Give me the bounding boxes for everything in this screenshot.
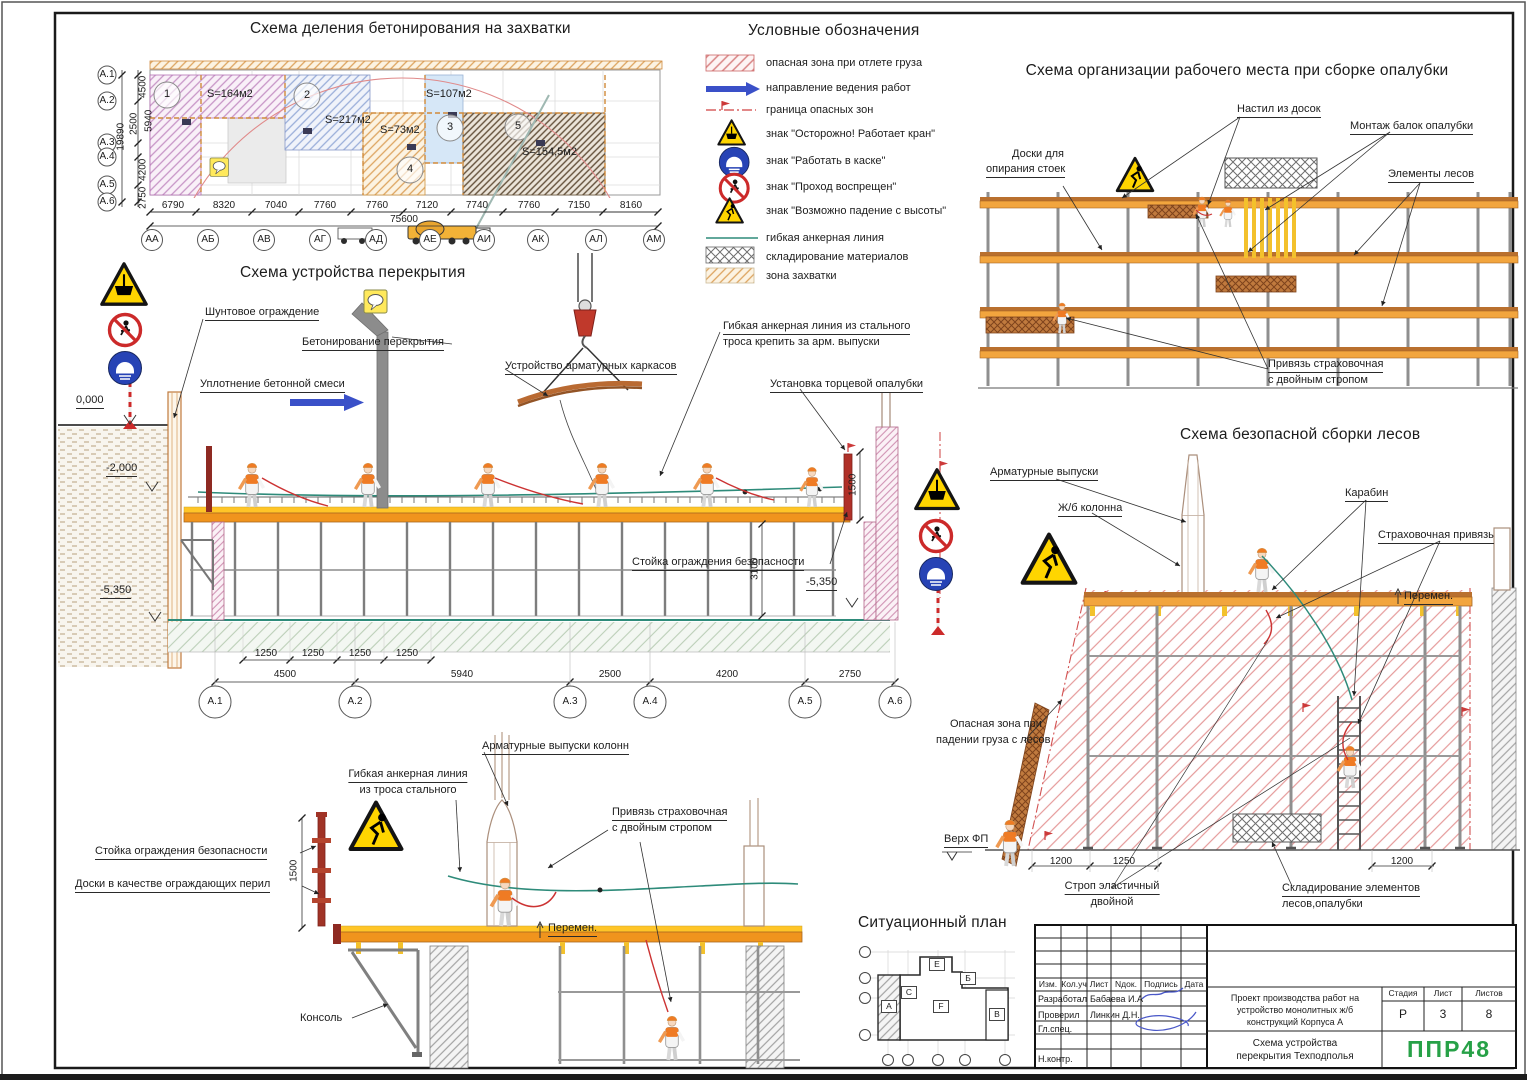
block-a: А xyxy=(881,1000,897,1013)
dim-label: 8320 xyxy=(213,200,235,212)
label-kolonna: Ж/б колонна xyxy=(1058,502,1122,517)
tb-sheet-value: 3 xyxy=(1440,1008,1447,1022)
legend-item: знак "Проход воспрещен" xyxy=(766,181,896,194)
tb-role: Н.контр. xyxy=(1038,1054,1073,1064)
label-strop-1: Строп эластичный xyxy=(1065,880,1160,895)
dim-label: 6790 xyxy=(162,200,184,212)
zone-area: S=154,5м2 xyxy=(522,146,577,159)
label-shuntovoe: Шунтовое ограждение xyxy=(205,306,319,321)
block-v: В xyxy=(989,1008,1005,1021)
work-direction-arrow-icon xyxy=(290,399,344,406)
label-doski-perila: Доски в качестве ограждающих перил xyxy=(75,878,270,893)
label-nastil: Настил из досок xyxy=(1237,103,1321,118)
tb-col-izm: Изм. xyxy=(1039,980,1057,990)
label-privyaz: Страховочная привязь xyxy=(1378,529,1494,544)
axis-label: АА xyxy=(145,234,158,246)
dim-label: 7120 xyxy=(416,200,438,212)
axis-label: А.1 xyxy=(99,69,114,81)
tb-drawing-1: Схема устройства xyxy=(1253,1038,1337,1050)
legend-item: складирование материалов xyxy=(766,251,908,264)
label-anker-1: Гибкая анкерная линия из стального xyxy=(723,320,910,335)
label-elementy: Элементы лесов xyxy=(1388,168,1474,183)
dim-label: 4500 xyxy=(274,669,296,681)
dim-label: 2750 xyxy=(839,669,861,681)
axis-label: А.6 xyxy=(887,696,902,708)
zone-area: S=164м2 xyxy=(207,88,253,101)
tb-sheet-label: Лист xyxy=(1434,989,1452,999)
dim-label: 1500 xyxy=(847,455,859,515)
tb-stage-value: Р xyxy=(1399,1008,1407,1022)
dim-label: 7760 xyxy=(366,200,388,212)
block-b: Б xyxy=(960,972,976,985)
axis-label: А.4 xyxy=(642,696,657,708)
tb-drawing-2: перекрытия Техподполья xyxy=(1236,1051,1353,1063)
tb-name: Бабаева И.А xyxy=(1090,994,1143,1004)
label-torec: Установка торцевой опалубки xyxy=(770,378,923,393)
dim-label: 1250 xyxy=(1113,856,1135,868)
label-privyaz-2: с двойным стропом xyxy=(612,822,712,835)
label-peremen: Перемен. xyxy=(548,922,597,937)
axis-label: АГ xyxy=(314,234,326,246)
label-uplotnenie: Уплотнение бетонной смеси xyxy=(200,378,345,393)
label-stoika: Стойка ограждения безопасности xyxy=(632,556,804,571)
axis-label: А.6 xyxy=(99,196,114,208)
elevation-label: -5,350 xyxy=(100,584,131,599)
label-doski-2: опирания стоек xyxy=(986,163,1065,178)
storage-hatch-icon xyxy=(706,247,754,263)
hazard-zone-hatch-icon xyxy=(706,55,754,71)
tb-col-ndok: Nдок. xyxy=(1115,980,1137,990)
label-anker-2: из троса стального xyxy=(360,784,457,797)
zone-area: S=73м2 xyxy=(380,124,420,137)
dim-label: 8160 xyxy=(620,200,642,212)
zone-number: 1 xyxy=(164,88,170,101)
legend-item: зона захватки xyxy=(766,270,837,283)
axis-label: АЛ xyxy=(589,234,602,246)
axis-label: АБ xyxy=(201,234,214,246)
dim-label: 1250 xyxy=(396,648,418,660)
tb-col-podpis: Подпись xyxy=(1144,980,1178,990)
tb-role: Разработал xyxy=(1038,994,1087,1004)
label-stoika: Стойка ограждения безопасности xyxy=(95,845,267,860)
dim-total: 75600 xyxy=(390,214,418,226)
helmet-sign-icon xyxy=(109,352,142,385)
legend-item: гибкая анкерная линия xyxy=(766,232,884,245)
zone-area: S=217м2 xyxy=(325,114,371,127)
zone-number: 4 xyxy=(407,163,413,176)
label-sklad-1: Складирование элементов xyxy=(1282,882,1420,897)
block-f: F xyxy=(933,1000,949,1013)
axis-label: АИ xyxy=(477,234,491,246)
dim-label: 1250 xyxy=(349,648,371,660)
helmet-sign-icon xyxy=(719,147,749,177)
label-strop-2: двойной xyxy=(1091,896,1134,909)
dim-label: 1250 xyxy=(302,648,324,660)
tb-col-koluch: Кол.уч xyxy=(1061,980,1087,990)
workplace-title: Схема организации рабочего места при сбо… xyxy=(1002,62,1472,80)
dim-label: 7040 xyxy=(265,200,287,212)
elevation-label: -2,000 xyxy=(106,462,137,477)
zone-number: 5 xyxy=(515,120,521,133)
axis-label: АМ xyxy=(647,234,662,246)
label-anker-2: троса крепить за арм. выпуски xyxy=(723,336,880,349)
tb-stage-label: Стадия xyxy=(1389,989,1418,999)
label-vypuski-kolonn: Арматурные выпуски колонн xyxy=(482,740,629,755)
axis-label: АВ xyxy=(257,234,270,246)
label-karabin: Карабин xyxy=(1345,487,1388,502)
dim-label: 2750 xyxy=(137,168,149,228)
label-opasnaya-2: падении груза с лесов xyxy=(936,734,1050,747)
tb-col-list: Лист xyxy=(1090,980,1108,990)
dim-label: 1500 xyxy=(288,841,300,901)
dim-label: 7760 xyxy=(314,200,336,212)
axis-label: А.5 xyxy=(797,696,812,708)
no-pass-sign-icon xyxy=(720,174,748,202)
label-sklad-2: лесов,опалубки xyxy=(1282,898,1363,911)
label-privyaz-2: с двойным стропом xyxy=(1268,374,1368,387)
label-konsol: Консоль xyxy=(300,1012,342,1025)
tb-sheets-label: Листов xyxy=(1475,989,1503,999)
tb-role: Проверил xyxy=(1038,1010,1079,1020)
block-s: С xyxy=(901,986,917,999)
zone-number: 3 xyxy=(447,121,453,134)
dim-label: 3100 xyxy=(749,539,761,599)
block-e: Е xyxy=(929,958,945,971)
label-privyaz-1: Привязь страховочная xyxy=(612,806,727,821)
zone-area: S=107м2 xyxy=(426,88,472,101)
slab-title: Схема устройства перекрытия xyxy=(240,264,465,282)
label-montazh: Монтаж балок опалубки xyxy=(1350,120,1473,135)
elevation-label: 0,000 xyxy=(76,394,104,409)
label-verh-fp: Верх ФП xyxy=(944,833,988,848)
drawing-sheet: Схема деления бетонирования на захватки … xyxy=(0,0,1527,1080)
dim-total: 19890 xyxy=(115,107,127,167)
legend-title: Условные обозначения xyxy=(748,22,919,40)
situational-title: Ситуационный план xyxy=(858,914,1007,932)
legend-item: граница опасных зон xyxy=(766,104,873,117)
axis-label: А.3 xyxy=(562,696,577,708)
label-karkas: Устройство арматурных каркасов xyxy=(505,360,677,375)
helmet-sign-icon xyxy=(920,558,953,591)
zone-hatch-icon xyxy=(706,268,754,283)
dim-label: 7760 xyxy=(518,200,540,212)
dim-label: 1200 xyxy=(1391,856,1413,868)
label-doski-1: Доски для xyxy=(1012,148,1064,161)
label-anker-1: Гибкая анкерная линия xyxy=(348,768,467,783)
tb-project: Проект производства работ на устройство … xyxy=(1212,992,1378,1028)
scaffold-title: Схема безопасной сборки лесов xyxy=(1180,426,1420,444)
label-privyaz-1: Привязь страховочная xyxy=(1268,358,1383,373)
tb-sheets-value: 8 xyxy=(1486,1008,1493,1022)
label-peremen: Перемен. xyxy=(1404,590,1453,605)
axis-label: АК xyxy=(532,234,545,246)
dim-label: 2500 xyxy=(599,669,621,681)
legend-item: направление ведения работ xyxy=(766,82,911,95)
axis-label: А.2 xyxy=(99,95,114,107)
dim-label: 7740 xyxy=(466,200,488,212)
dim-label: 1250 xyxy=(255,648,277,660)
axis-label: А.4 xyxy=(99,151,114,163)
zone-number: 2 xyxy=(304,89,310,102)
label-opasnaya-1: Опасная зона при xyxy=(950,718,1042,731)
axis-label: А.3 xyxy=(99,137,114,149)
plan-title: Схема деления бетонирования на захватки xyxy=(250,20,571,38)
axis-label: А.5 xyxy=(99,179,114,191)
dim-label: 7150 xyxy=(568,200,590,212)
dim-label: 5940 xyxy=(451,669,473,681)
tb-col-data: Дата xyxy=(1185,980,1204,990)
company-logo: ППР48 xyxy=(1407,1036,1491,1062)
tb-role: Гл.спец. xyxy=(1038,1024,1072,1034)
tb-name: Линкин Д.Н. xyxy=(1090,1010,1140,1020)
legend-item: знак "Возможно падение с высоты" xyxy=(766,205,946,218)
no-pass-sign-icon xyxy=(921,521,952,552)
dim-label: 1200 xyxy=(1050,856,1072,868)
legend-item: знак "Работать в каске" xyxy=(766,155,885,168)
axis-label: А.1 xyxy=(207,696,222,708)
dim-label: 4200 xyxy=(716,669,738,681)
legend-item: опасная зона при отлете груза xyxy=(766,57,922,70)
construction-drawing-svg xyxy=(0,0,1527,1080)
label-vypuski: Арматурные выпуски xyxy=(990,466,1098,481)
legend-item: знак "Осторожно! Работает кран" xyxy=(766,128,935,141)
axis-label: АД xyxy=(369,234,383,246)
axis-label: АЕ xyxy=(423,234,436,246)
axis-label: А.2 xyxy=(347,696,362,708)
elevation-label: -5,350 xyxy=(806,576,837,591)
label-beton: Бетонирование перекрытия xyxy=(302,336,444,351)
no-pass-sign-icon xyxy=(110,315,141,346)
